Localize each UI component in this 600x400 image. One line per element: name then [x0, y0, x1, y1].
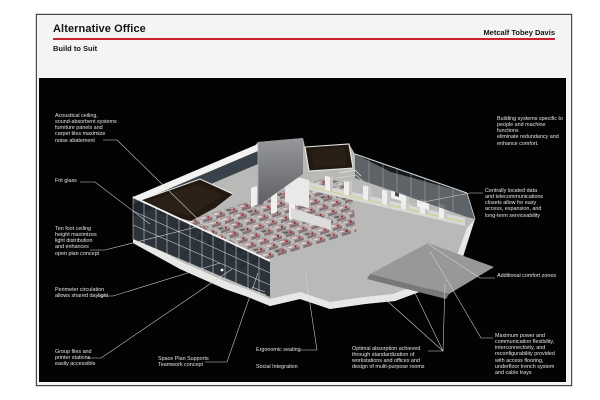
page-title: Alternative Office [53, 23, 146, 35]
highlight-dot [221, 269, 224, 272]
page-background: { "header": { "title": "Alternative Offi… [0, 0, 600, 400]
annotation-frit-glass: Frit glass [55, 178, 77, 184]
image-panel: Acoustical ceiling, sound-absorbent syst… [39, 78, 566, 382]
annotation-optimal-absorption: Optimal absorption achieved through stan… [352, 346, 425, 371]
roof-patch-right [305, 144, 353, 171]
annotation-ten-foot-ceiling: Ten foot ceiling height maximizes light … [55, 226, 99, 257]
firm-name: Metcalf Tobey Davis [483, 28, 555, 37]
annotation-social-integration: Social Integration [256, 364, 298, 370]
annotation-perimeter-circulation: Perimeter circulation allows shared dayl… [55, 287, 108, 299]
annotation-comfort-zones: Additional comfort zones [497, 273, 556, 279]
annotation-central-data: Centrally located data and telecommunica… [485, 188, 543, 219]
annotation-group-files: Group files and printer stations easily … [55, 349, 95, 367]
leader-optimal-1 [385, 299, 443, 351]
annotation-space-plan: Space Plan Supports Teamwork concept [158, 356, 209, 368]
slide: Alternative Office Metcalf Tobey Davis B… [36, 14, 572, 386]
divider-rule [53, 38, 555, 40]
leader-optimal-2 [415, 293, 443, 351]
annotation-building-systems: Building systems specific to people and … [497, 116, 566, 147]
annotation-acoustical-ceiling: Acoustical ceiling, sound-absorbent syst… [55, 113, 117, 144]
annotation-maximum-power: Maximum power and communication flexibil… [495, 333, 555, 376]
annotation-ergonomic-seating: Ergonomic seating [256, 347, 301, 353]
building-illustration [39, 78, 566, 382]
page-subtitle: Build to Suit [53, 44, 97, 53]
